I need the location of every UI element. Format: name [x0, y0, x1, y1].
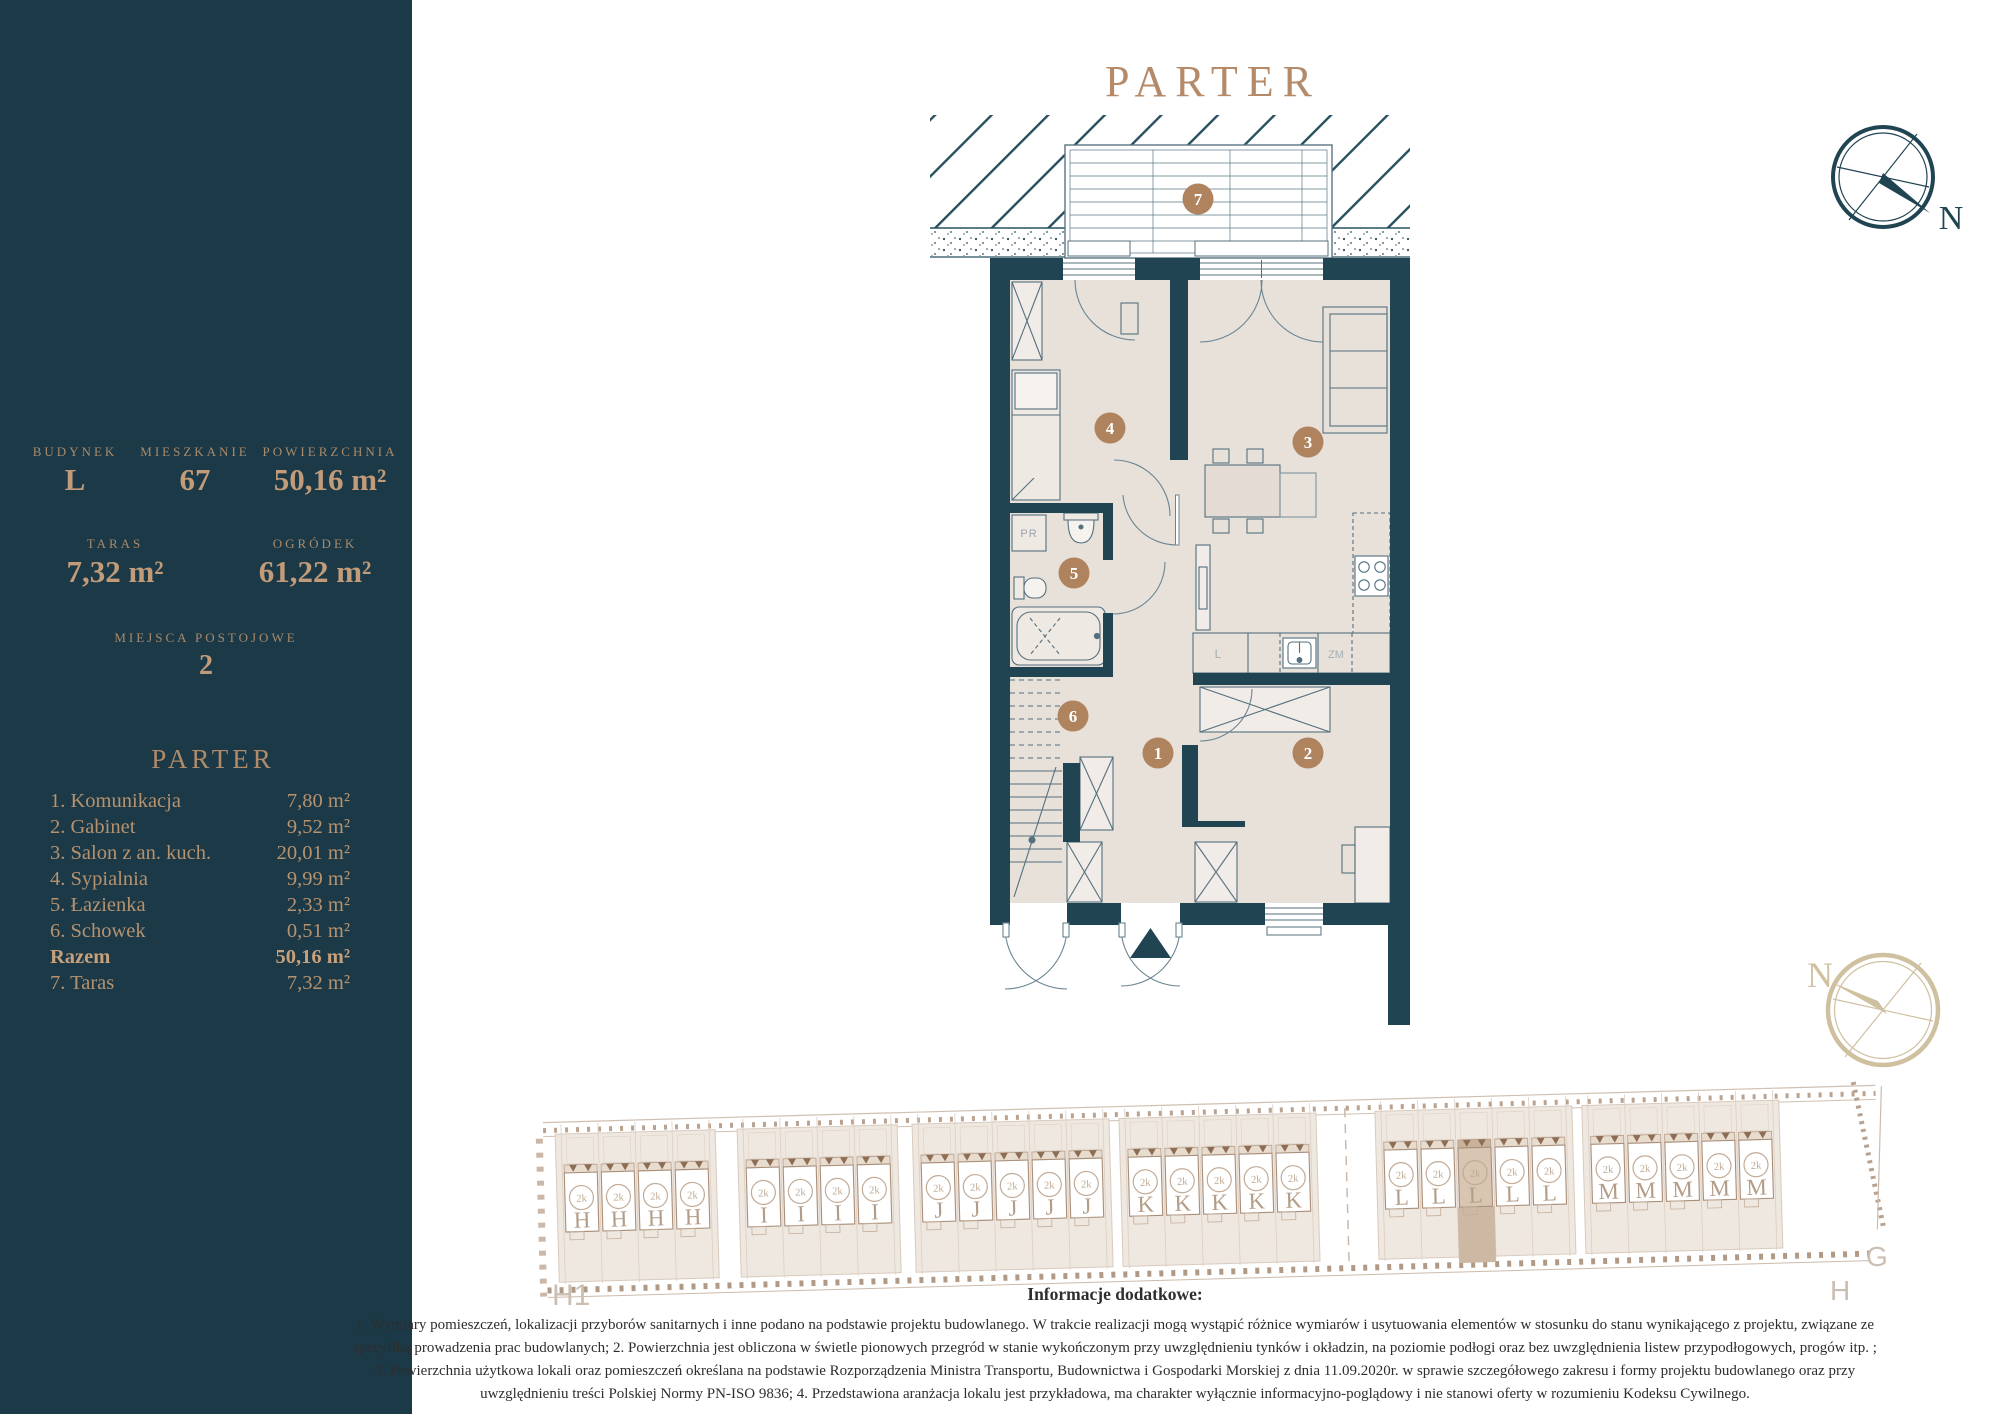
svg-text:3: 3 — [1304, 433, 1313, 452]
svg-text:7: 7 — [1194, 190, 1203, 209]
svg-text:K: K — [1285, 1187, 1303, 1212]
svg-text:I: I — [834, 1200, 842, 1225]
svg-text:2k: 2k — [1081, 1179, 1093, 1190]
svg-text:2k: 2k — [970, 1182, 982, 1193]
toilet — [1014, 577, 1046, 599]
svg-text:J: J — [1082, 1193, 1092, 1218]
entrance-arrow-icon — [1130, 928, 1171, 958]
svg-text:H: H — [573, 1207, 590, 1232]
additional-info-line: 3. Powierzchnia użytkowa lokali oraz pom… — [285, 1360, 1945, 1383]
svg-text:M: M — [1709, 1175, 1730, 1201]
svg-text:M: M — [1598, 1179, 1619, 1205]
svg-text:2k: 2k — [1288, 1174, 1300, 1185]
wardrobe — [1195, 842, 1237, 902]
svg-text:H: H — [684, 1204, 701, 1229]
svg-text:L: L — [1542, 1180, 1557, 1205]
label-dishwasher: ZM — [1328, 649, 1344, 661]
svg-text:N: N — [1807, 955, 1833, 995]
svg-text:2k: 2k — [650, 1191, 662, 1202]
tv-cabinet — [1196, 545, 1210, 630]
svg-text:J: J — [934, 1197, 944, 1222]
svg-text:2k: 2k — [1140, 1178, 1152, 1189]
room-marker-3: 3 — [1293, 427, 1324, 458]
svg-text:2k: 2k — [576, 1193, 588, 1204]
svg-text:2k: 2k — [1751, 1161, 1763, 1172]
floorplan-page: BUDYNEK L MIESZKANIE 67 POWIERZCHNIA 50,… — [0, 0, 2000, 1414]
additional-info: Informacje dodatkowe: 1. Wymiary pomiesz… — [285, 1284, 1945, 1406]
svg-text:2k: 2k — [1251, 1175, 1263, 1186]
svg-text:2k: 2k — [1007, 1181, 1019, 1192]
additional-info-line: 1. Wymiary pomieszczeń, lokalizacji przy… — [285, 1314, 1945, 1337]
site-plan-units: 2kH2kH2kH2kH2kI2kI2kI2kI2kJ2kJ2kJ2kJ2kJ2… — [555, 1090, 1783, 1288]
svg-text:2k: 2k — [1433, 1169, 1445, 1180]
svg-text:2k: 2k — [1677, 1163, 1689, 1174]
compass-north-icon: N — [1833, 127, 1963, 237]
svg-text:1: 1 — [1154, 744, 1163, 763]
svg-text:4: 4 — [1106, 419, 1115, 438]
svg-text:M: M — [1635, 1178, 1656, 1204]
room-marker-7: 7 — [1183, 184, 1214, 215]
additional-info-title: Informacje dodatkowe: — [285, 1284, 1945, 1305]
svg-text:J: J — [1008, 1195, 1018, 1220]
svg-text:2k: 2k — [869, 1185, 881, 1196]
svg-text:2k: 2k — [832, 1186, 844, 1197]
label-fridge: L — [1215, 647, 1222, 661]
sink-icon — [1283, 638, 1316, 668]
room-marker-2: 2 — [1293, 738, 1324, 769]
room-marker-1: 1 — [1143, 738, 1174, 769]
svg-text:2k: 2k — [933, 1183, 945, 1194]
bed — [1012, 370, 1060, 500]
svg-text:J: J — [971, 1196, 981, 1221]
wardrobe — [1200, 687, 1330, 732]
svg-text:N: N — [1939, 200, 1964, 237]
additional-info-line: uwzględnieniu treści Polskiej Normy PN-I… — [285, 1383, 1945, 1406]
bathtub — [1012, 607, 1105, 665]
room-marker-6: 6 — [1058, 701, 1089, 732]
additional-info-line: specyfiką prowadzenia prac budowlanych; … — [285, 1337, 1945, 1360]
wardrobe — [1080, 757, 1113, 830]
svg-text:2k: 2k — [613, 1192, 625, 1203]
svg-text:J: J — [1045, 1194, 1055, 1219]
svg-text:2k: 2k — [1470, 1168, 1482, 1179]
svg-text:K: K — [1211, 1189, 1229, 1214]
svg-text:I: I — [760, 1202, 768, 1227]
svg-text:2k: 2k — [1044, 1180, 1056, 1191]
svg-text:L: L — [1394, 1184, 1409, 1209]
svg-text:K: K — [1137, 1192, 1155, 1217]
svg-text:2k: 2k — [1214, 1176, 1226, 1187]
svg-text:M: M — [1672, 1177, 1693, 1203]
svg-text:2k: 2k — [795, 1187, 807, 1198]
svg-text:H: H — [610, 1206, 627, 1231]
sofa — [1323, 307, 1387, 433]
svg-text:2k: 2k — [758, 1188, 770, 1199]
svg-text:L: L — [1468, 1182, 1483, 1207]
plan-graphics: PR L ZM 1 2 3 4 5 6 7 N — [0, 0, 2000, 1414]
floor-plan: PR L ZM 1 2 3 4 5 6 7 — [930, 115, 1410, 1025]
svg-text:I: I — [797, 1201, 805, 1226]
svg-text:2k: 2k — [687, 1190, 699, 1201]
svg-text:2k: 2k — [1544, 1166, 1556, 1177]
stove-icon — [1355, 556, 1388, 596]
svg-text:2k: 2k — [1396, 1170, 1408, 1181]
svg-text:2k: 2k — [1640, 1164, 1652, 1175]
svg-text:2k: 2k — [1714, 1162, 1726, 1173]
svg-text:2: 2 — [1304, 744, 1313, 763]
svg-text:L: L — [1431, 1183, 1446, 1208]
svg-text:5: 5 — [1070, 564, 1079, 583]
svg-text:H: H — [647, 1205, 664, 1230]
svg-text:K: K — [1248, 1188, 1266, 1213]
svg-text:K: K — [1174, 1191, 1192, 1216]
site-label-g: G — [1866, 1241, 1888, 1272]
svg-text:L: L — [1505, 1181, 1520, 1206]
compass-north-gold-icon: N — [1807, 955, 1938, 1065]
svg-text:6: 6 — [1069, 707, 1078, 726]
wardrobe — [1067, 842, 1102, 902]
site-plan: 2kH2kH2kH2kH2kI2kI2kI2kI2kJ2kJ2kJ2kJ2kJ2… — [539, 1081, 1888, 1312]
svg-text:2k: 2k — [1177, 1177, 1189, 1188]
room-marker-4: 4 — [1095, 413, 1126, 444]
svg-text:I: I — [871, 1199, 879, 1224]
label-washer: PR — [1020, 528, 1037, 540]
room-marker-5: 5 — [1059, 558, 1090, 589]
wardrobe — [1012, 282, 1042, 360]
svg-text:2k: 2k — [1603, 1165, 1615, 1176]
svg-text:2k: 2k — [1507, 1167, 1519, 1178]
svg-text:M: M — [1746, 1174, 1767, 1200]
